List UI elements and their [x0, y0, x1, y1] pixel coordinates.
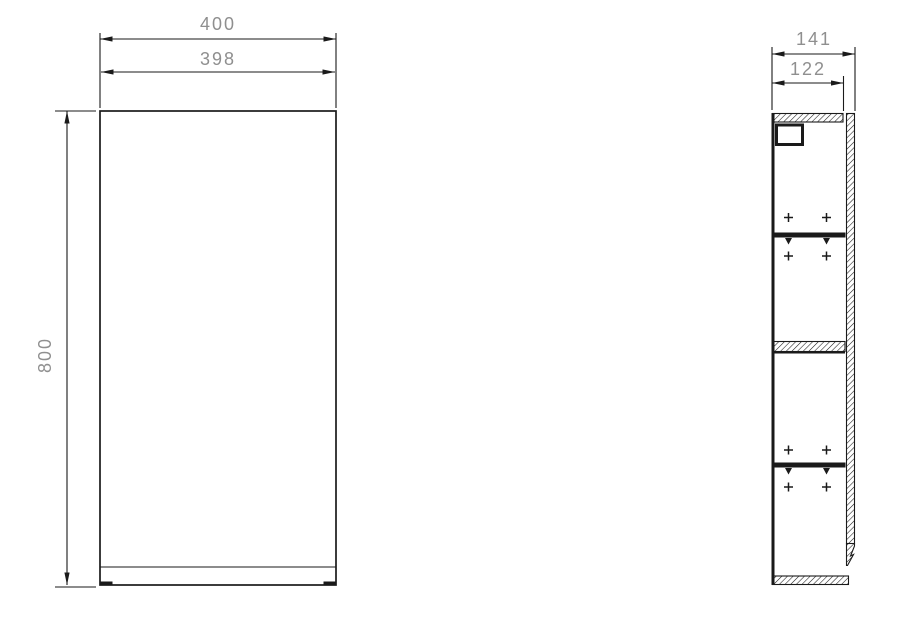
technical-drawing-page: 400 398 800 [0, 0, 921, 634]
front-view: 400 398 800 [35, 14, 336, 587]
screw-cross-markers-row1 [784, 213, 831, 222]
side-section-view: 141 122 [772, 29, 856, 585]
dim-label-side-carcass-depth: 122 [790, 59, 826, 79]
screw-tip-marker [823, 238, 830, 245]
screw-tip-marker [823, 468, 830, 475]
side-door-panel-break [847, 544, 855, 566]
front-cabinet-outline [100, 111, 336, 585]
screw-cross-markers-row4 [784, 483, 831, 492]
screw-cross-markers-row3 [784, 446, 831, 455]
dim-label-side-depth: 141 [796, 29, 832, 49]
screw-cross-markers-row2 [784, 252, 831, 261]
screw-tip-marker [785, 468, 792, 475]
technical-drawing-canvas: 400 398 800 [0, 0, 921, 634]
dim-label-front-door-width: 398 [200, 49, 236, 69]
wall-hanger-bracket [777, 125, 803, 145]
front-bottom-left-stub [100, 582, 113, 586]
side-door-panel [847, 114, 855, 544]
side-fixed-shelf [773, 342, 846, 352]
side-bottom-panel [773, 576, 849, 585]
side-shelf-rail-2 [772, 463, 846, 468]
screw-tip-marker [785, 238, 792, 245]
side-top-panel [773, 114, 844, 123]
dim-label-front-width: 400 [200, 14, 236, 34]
side-shelf-rail-1 [772, 233, 846, 238]
dim-label-front-height: 800 [35, 337, 55, 373]
front-bottom-right-stub [324, 582, 337, 586]
